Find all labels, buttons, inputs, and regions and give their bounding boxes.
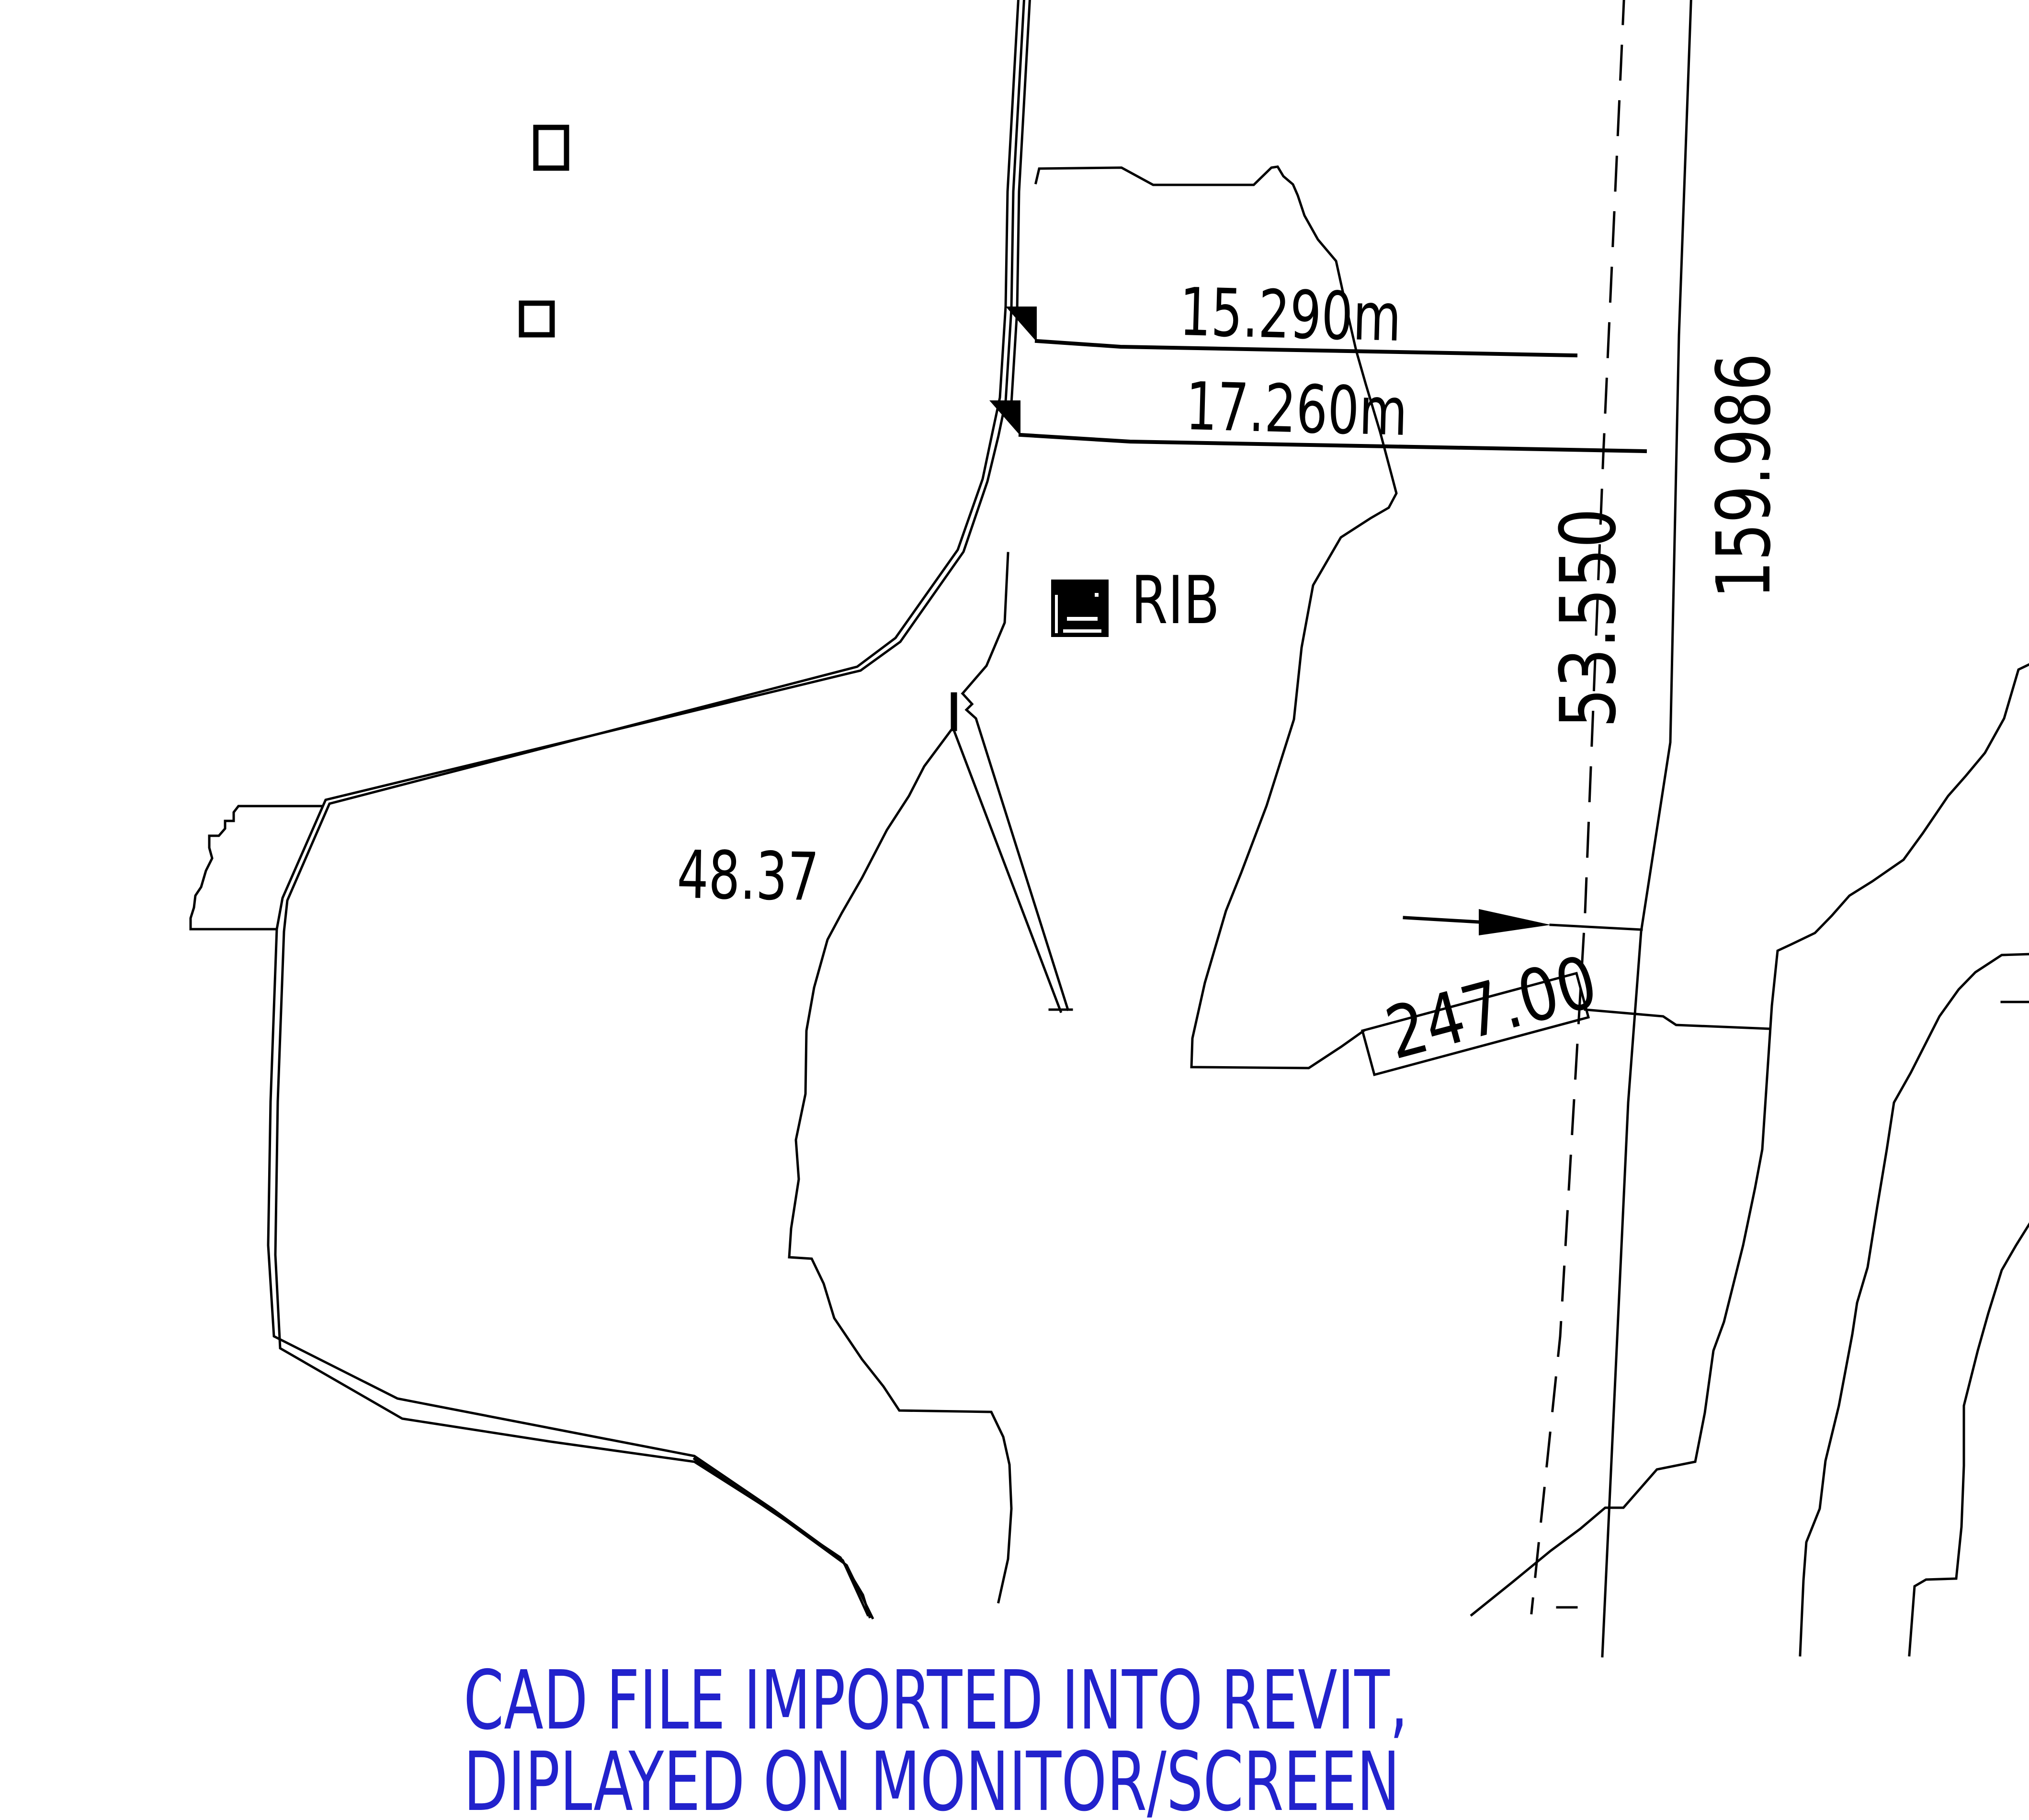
dashed-centerline	[1531, 0, 1624, 1613]
wedge-inner-edge	[954, 730, 1061, 1012]
band-merge-tail	[694, 1459, 870, 1617]
survey-marker-square-1	[536, 127, 567, 168]
band-line-outer	[275, 0, 1019, 1618]
peak-left-flank	[789, 729, 1011, 1602]
band-line-middle	[268, 0, 1024, 1615]
caption-line-1: CAD FILE IMPORTED INTO REVIT,	[464, 1660, 1408, 1741]
right-contour-2	[1800, 954, 2029, 1655]
survey-marker-square-2	[521, 303, 552, 335]
rib-label: RIB	[1131, 568, 1220, 634]
station-text-53550: 53.550	[1550, 508, 1627, 728]
slope-arrow-tail	[1405, 918, 1479, 922]
station-text-159986: 159.986	[1707, 353, 1781, 599]
cad-linework	[0, 0, 2029, 1820]
dimension-text-1: 15.290m	[1179, 279, 1402, 351]
shelf-line	[1585, 1010, 1769, 1029]
slope-arrow-extension	[1551, 925, 1642, 930]
wedge-outer-edge	[963, 694, 1068, 1010]
caption-line-2: DIPLAYED ON MONITOR/SCREEN	[464, 1741, 1408, 1820]
right-contour-3	[1909, 1222, 2029, 1655]
rib-symbol-icon	[1051, 580, 1109, 637]
slope-arrow-head-icon	[1479, 909, 1551, 935]
caption: CAD FILE IMPORTED INTO REVIT, DIPLAYED O…	[464, 1660, 1408, 1820]
dimension-text-2: 17.260m	[1185, 374, 1408, 445]
cad-viewport: 15.290m 17.260m 48.37 RIB 53.550 159.986…	[0, 0, 2029, 1820]
spot-level-text: 48.37	[677, 842, 820, 910]
right-boundary-line	[1602, 0, 1691, 1656]
right-contour-1	[1472, 664, 2029, 1615]
center-descender	[963, 553, 1008, 694]
